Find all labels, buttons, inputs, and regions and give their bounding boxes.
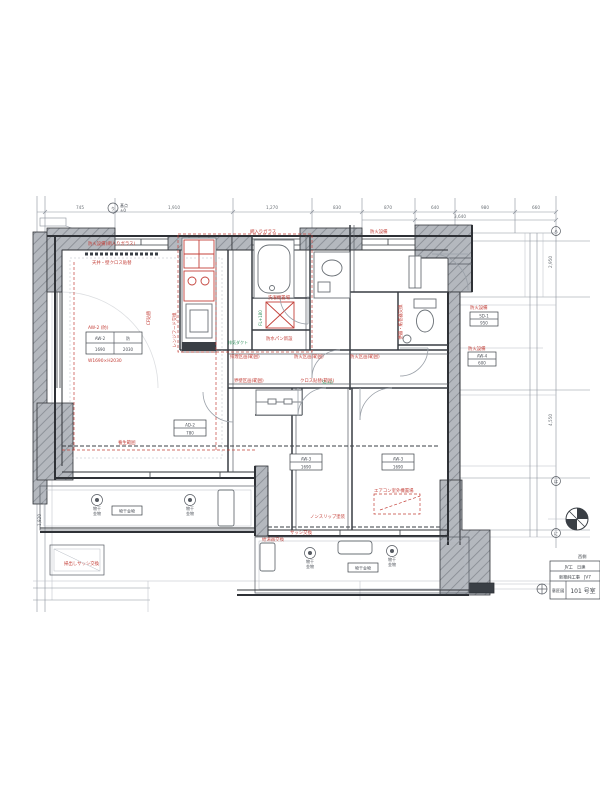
ac-unit	[338, 541, 372, 554]
red-note: 洗濯機置場	[268, 294, 291, 301]
red-note: 便器・紙巻器交換	[397, 304, 404, 340]
hose-bib-icon: 物干 金物	[305, 548, 316, 570]
symbol-label: 金物	[388, 561, 396, 567]
dim-top2: 3,640	[454, 214, 466, 219]
hose-bib-icon: 物干 金物	[387, 546, 398, 568]
red-note: 養生範囲	[118, 439, 136, 446]
tag-cell: 防	[126, 335, 130, 341]
wash-basin	[322, 260, 342, 276]
green-note: 排気ダクト	[228, 339, 248, 345]
dim-left: 1,820	[37, 514, 42, 526]
datum-circle	[537, 584, 547, 594]
title-corner: 西側	[578, 553, 586, 560]
floor-plan-drawing: 745 1,910 1,270 830 870 640 980 660 3,64…	[0, 0, 600, 800]
vanity-cabinet	[318, 282, 330, 292]
water-heater	[218, 490, 234, 526]
red-note: ノンスリップ塗装	[310, 513, 346, 520]
grid-bubble-top: り 基点 ±0	[108, 202, 128, 213]
red-note: CF貼替	[145, 310, 152, 325]
bubble-text: り	[111, 205, 115, 211]
balcony-label: 物干金物	[112, 506, 142, 515]
red-note: 防火設備	[370, 228, 388, 235]
tag-cell: 1690	[301, 465, 312, 470]
red-note: エアコン室外機置場	[374, 487, 414, 494]
hose-bib-icon: 物干 金物	[92, 495, 103, 517]
kitchen-cabinet-inner	[190, 310, 208, 332]
tag-box: AW-3 1690	[382, 454, 414, 470]
tag-cell: 950	[480, 321, 488, 326]
dim-top: 1,270	[266, 205, 278, 210]
symbol-label: 金物	[186, 510, 194, 516]
red-note: 天井・壁クロス貼替	[92, 259, 132, 266]
dim-top: 640	[431, 205, 439, 210]
dim-right: 2,950	[548, 256, 553, 268]
dim-top: 745	[76, 205, 84, 210]
red-note: W1690×H2030	[88, 358, 122, 364]
red-note: 防火区画(範囲)	[294, 353, 324, 360]
red-note: レンジフード交換	[171, 312, 178, 348]
balcony-label-text: 物干金物	[355, 565, 371, 571]
red-note: AW-2 (防)	[88, 324, 109, 331]
title-row: 新築純工事 JV7	[559, 574, 591, 581]
red-note: 防火設備	[468, 345, 486, 352]
balcony-label: 物干金物	[348, 563, 378, 572]
green-note: SL±0	[322, 380, 333, 385]
dim-top: 980	[481, 205, 489, 210]
dim-right: 4,550	[548, 414, 553, 426]
title-block: 西側 JV工 日建 新築純工事 JV7 意匠図 101 号室	[537, 553, 600, 599]
tag-cell: 1690	[393, 465, 404, 470]
tag-cell: AD-2	[185, 423, 195, 428]
green-note: FL+180	[258, 310, 263, 326]
red-note: 網入りガラス	[250, 228, 276, 235]
dim-top: 870	[384, 205, 392, 210]
title-row: JV工 日建	[564, 564, 587, 571]
washing-machine-pan	[266, 302, 294, 328]
water-heater	[260, 543, 275, 571]
bubble-text: は	[554, 479, 558, 484]
ac-outdoor-unit	[374, 494, 420, 514]
tag-left-room: AW-2 防 1690 2030	[86, 332, 142, 354]
tag-cell: 780	[186, 431, 194, 436]
floor-plan-sheet: 745 1,910 1,270 830 870 640 980 660 3,64…	[0, 0, 600, 800]
closet	[256, 390, 302, 415]
tag-box: AW-4 600	[468, 352, 496, 366]
dim-top: 830	[333, 205, 341, 210]
hose-bib-icon: 物干 金物	[185, 495, 196, 517]
dimension-grid-lines	[33, 196, 590, 612]
tag-cell: 2030	[123, 347, 134, 352]
compass-icon	[566, 508, 588, 530]
tag-cell: AW-4	[477, 354, 488, 359]
red-note: 界壁区画(範囲)	[234, 377, 264, 384]
red-note: 防火設備(網入りガラス)	[88, 240, 136, 247]
tag-box: SD-1 950	[470, 312, 498, 326]
title-cell: 意匠図	[552, 587, 565, 594]
red-note: 掃出しサッシ交換	[64, 560, 100, 567]
balcony-label-text: 物干金物	[119, 508, 135, 514]
dim-top: 660	[532, 205, 540, 210]
tag-cell: SD-1	[479, 314, 489, 319]
room-number: 101 号室	[570, 587, 595, 595]
bubble-text: ろ	[554, 228, 558, 234]
red-note: 防火区画(範囲)	[350, 353, 380, 360]
symbol-label: 金物	[306, 563, 314, 569]
tag-box: AD-2 780	[174, 420, 206, 436]
bubble-note: ±0	[120, 208, 126, 213]
tag-box: AW-3 1690	[290, 454, 322, 470]
dim-top: 1,910	[168, 205, 180, 210]
green-annotations: FL+180 SL±0 排気ダクト	[228, 310, 333, 385]
symbol-label: 金物	[93, 510, 101, 516]
tag-cell: 1690	[95, 347, 106, 352]
red-note: 排煙区画(範囲)	[230, 353, 260, 360]
red-note: サッシ交換	[290, 529, 313, 536]
tag-cell: AW-3	[393, 457, 404, 462]
tag-cell: AW-3	[301, 457, 312, 462]
evacuation-hatch	[50, 545, 104, 575]
range-hood	[182, 342, 216, 351]
red-note: 防水パン新設	[266, 335, 293, 342]
toilet	[403, 299, 436, 343]
tag-cell: AW-2	[95, 336, 106, 341]
bathtub-inner	[258, 245, 290, 293]
bubble-text: に	[554, 531, 558, 536]
bath-drain	[270, 286, 275, 291]
red-note: 防火設備	[470, 304, 488, 311]
tag-cell: 600	[478, 361, 486, 366]
